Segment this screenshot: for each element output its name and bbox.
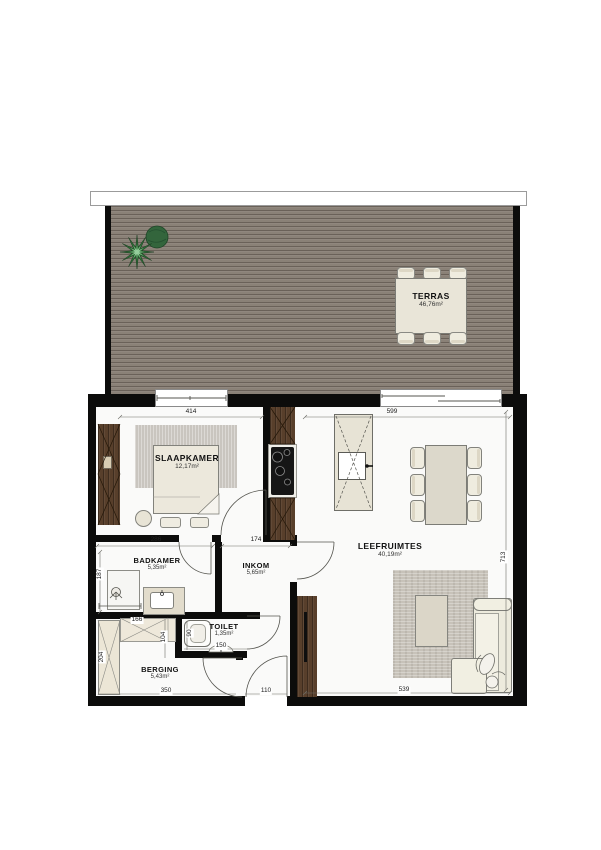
wall-inkom-living <box>290 582 297 696</box>
leefruimtes-area: 40,19m² <box>358 551 422 559</box>
tv-cabinet <box>297 596 317 697</box>
washer-shelf <box>120 618 176 642</box>
dim-leefruimtes-depth: 713 <box>501 551 508 564</box>
room-label-terras: TERRAS 46,76m² <box>412 292 449 309</box>
berging-name: BERGING <box>141 666 179 674</box>
dim-berging-cabinet-depth: 204 <box>99 651 106 664</box>
terras-name: TERRAS <box>412 292 449 301</box>
entry-door-opening <box>245 696 287 706</box>
floor-plan: TERRAS 46,76m² SLAAPKAMER 12,17m² LEEFRU… <box>0 0 601 850</box>
leefruimtes-name: LEEFRUIMTES <box>358 542 422 551</box>
pillow <box>190 517 209 528</box>
wall-top <box>88 394 155 407</box>
sofa-armrest <box>473 598 512 611</box>
dim-leefruimtes-width: 599 <box>387 409 398 416</box>
dining-chair <box>410 474 425 496</box>
room-label-toilet: TOILET 1,35m² <box>210 623 239 638</box>
toilet-name: TOILET <box>210 623 239 631</box>
terrace-chair <box>397 332 415 345</box>
wardrobe <box>98 424 120 525</box>
roof-edge <box>90 191 527 206</box>
living-sliding-door <box>380 389 502 407</box>
wall-bedroom-bottom <box>212 535 221 542</box>
bedroom-window <box>155 389 228 407</box>
terrace-wall-left <box>105 206 111 394</box>
slaapkamer-name: SLAAPKAMER <box>155 454 219 463</box>
badkamer-name: BADKAMER <box>134 557 181 565</box>
terrace-chair <box>423 332 441 345</box>
slaapkamer-area: 12,17m² <box>155 463 219 471</box>
kitchen-sink <box>338 452 366 480</box>
dining-chair <box>467 474 482 496</box>
terrace-wall-right <box>513 206 520 394</box>
dim-berging-shelf-width: 166 <box>131 617 144 624</box>
dim-leefruimtes-bottom-width: 539 <box>398 687 411 694</box>
dining-chair <box>467 500 482 522</box>
tv-screen <box>304 612 307 662</box>
inkom-name: INKOM <box>243 562 270 570</box>
room-label-leefruimtes: LEEFRUIMTES 40,19m² <box>358 542 422 559</box>
wall-bottom <box>287 696 527 706</box>
wall-right <box>513 394 527 706</box>
pillow <box>160 517 181 528</box>
sofa-chaise <box>451 658 487 694</box>
wall-berging-inkom <box>236 651 243 660</box>
dining-chair <box>467 447 482 469</box>
dim-inkom-width: 174 <box>251 537 262 544</box>
toilet-area: 1,35m² <box>210 631 239 638</box>
dim-entry-door-width: 110 <box>260 688 272 695</box>
dim-badkamer-width: 286 <box>151 537 162 544</box>
wall-left <box>88 394 96 706</box>
dim-toilet-depth: 90 <box>187 628 194 637</box>
wall-bedroom-bottom <box>96 535 179 542</box>
coffee-table <box>415 595 448 647</box>
bathroom-sink <box>150 592 174 609</box>
dining-chair <box>410 447 425 469</box>
room-label-slaapkamer: SLAAPKAMER 12,17m² <box>155 454 219 471</box>
cooktop <box>271 447 294 495</box>
wardrobe-tag <box>103 456 112 469</box>
wall-top <box>228 394 380 407</box>
dim-badkamer-depth: 187 <box>97 568 104 581</box>
badkamer-area: 5,35m² <box>134 565 181 572</box>
dining-chair <box>410 500 425 522</box>
wall-bottom <box>88 696 245 706</box>
room-label-badkamer: BADKAMER 5,35m² <box>134 557 181 572</box>
dim-berging-width: 350 <box>160 688 173 695</box>
dim-toilet-width: 150 <box>215 643 228 650</box>
terras-area: 46,76m² <box>412 301 449 309</box>
dim-berging-shelf-depth: 104 <box>161 631 168 644</box>
dining-table <box>425 445 467 525</box>
room-label-inkom: INKOM 5,65m² <box>243 562 270 577</box>
room-label-berging: BERGING 5,43m² <box>141 666 179 681</box>
berging-area: 5,43m² <box>141 674 179 681</box>
wall-badkamer-inkom <box>215 542 222 619</box>
shower <box>107 570 140 610</box>
inkom-area: 5,65m² <box>243 570 270 577</box>
terrace-chair <box>449 332 467 345</box>
dim-slaapkamer-width: 414 <box>186 409 197 416</box>
round-stool <box>135 510 152 527</box>
